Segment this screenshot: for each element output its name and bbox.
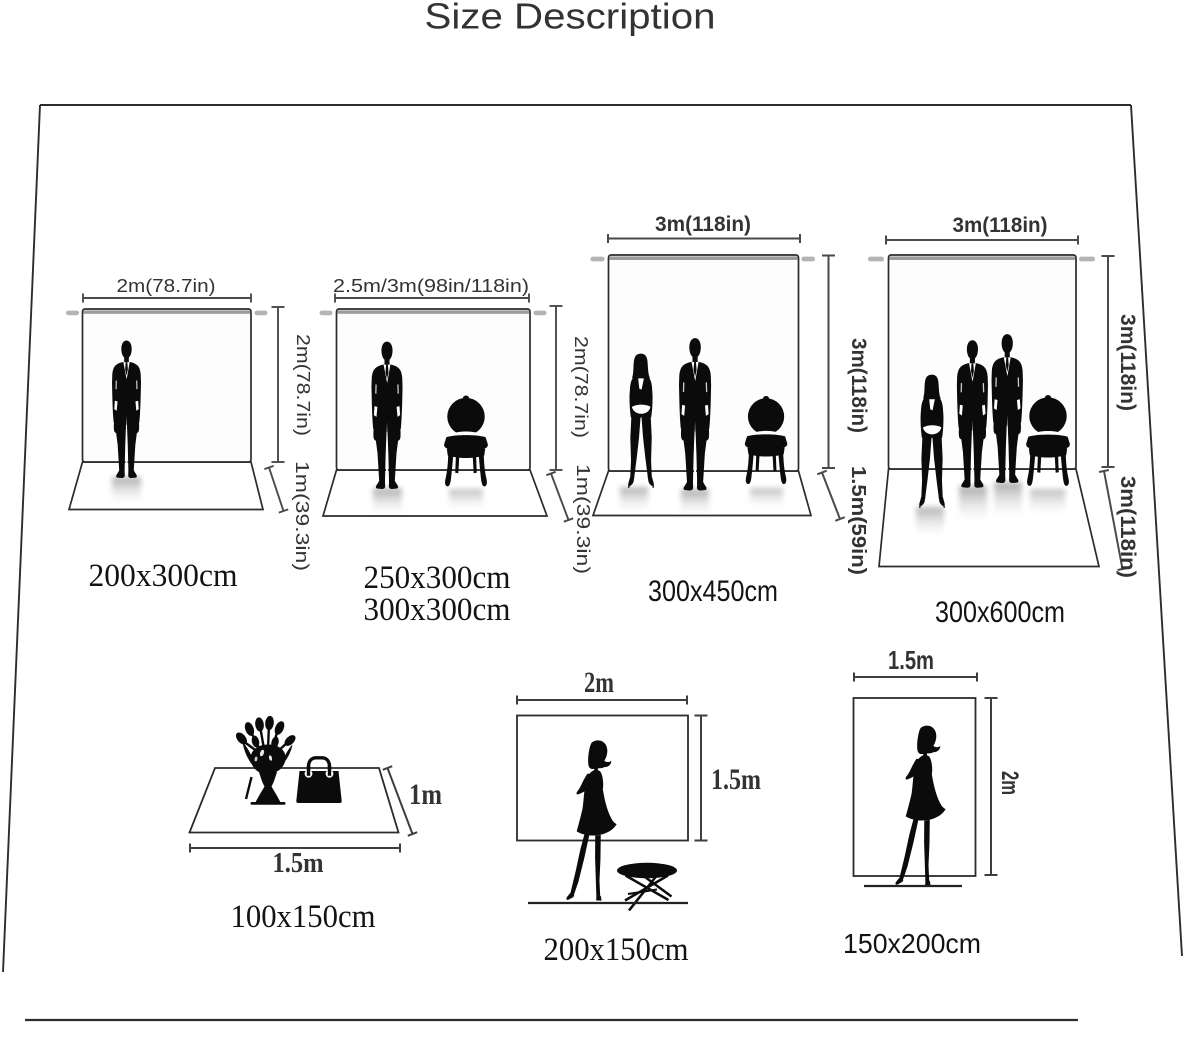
svg-text:200x150cm: 200x150cm <box>544 932 689 968</box>
svg-text:300x300cm: 300x300cm <box>364 592 511 628</box>
svg-text:3m(118in): 3m(118in) <box>655 213 751 236</box>
svg-text:250x300cm: 250x300cm <box>364 560 511 596</box>
svg-text:2m: 2m <box>584 666 614 699</box>
svg-text:150x200cm: 150x200cm <box>843 928 981 959</box>
svg-text:100x150cm: 100x150cm <box>231 899 376 935</box>
svg-text:2.5m/3m(98in/118in): 2.5m/3m(98in/118in) <box>333 276 529 296</box>
svg-text:Size Description: Size Description <box>425 0 716 37</box>
svg-text:1.5m: 1.5m <box>711 763 761 796</box>
svg-text:2m(78.7in): 2m(78.7in) <box>117 276 216 296</box>
svg-text:3m(118in): 3m(118in) <box>953 214 1048 237</box>
svg-text:3m(118in): 3m(118in) <box>1116 314 1139 411</box>
svg-text:300x450cm: 300x450cm <box>648 575 778 608</box>
svg-text:300x600cm: 300x600cm <box>935 596 1065 629</box>
svg-text:2m: 2m <box>996 771 1023 795</box>
svg-text:1.5m(59in): 1.5m(59in) <box>847 466 869 575</box>
svg-text:1m(39.3in): 1m(39.3in) <box>573 464 593 574</box>
svg-text:1m(39.3in): 1m(39.3in) <box>292 461 312 571</box>
svg-text:3m(118in): 3m(118in) <box>1116 476 1139 578</box>
svg-text:1m: 1m <box>409 778 442 811</box>
svg-text:1.5m: 1.5m <box>888 645 934 675</box>
svg-text:1.5m: 1.5m <box>273 847 324 879</box>
svg-text:200x300cm: 200x300cm <box>89 558 238 594</box>
svg-text:2m(78.7in): 2m(78.7in) <box>571 336 591 438</box>
svg-text:2m(78.7in): 2m(78.7in) <box>293 334 313 436</box>
svg-text:3m(118in): 3m(118in) <box>847 338 870 433</box>
